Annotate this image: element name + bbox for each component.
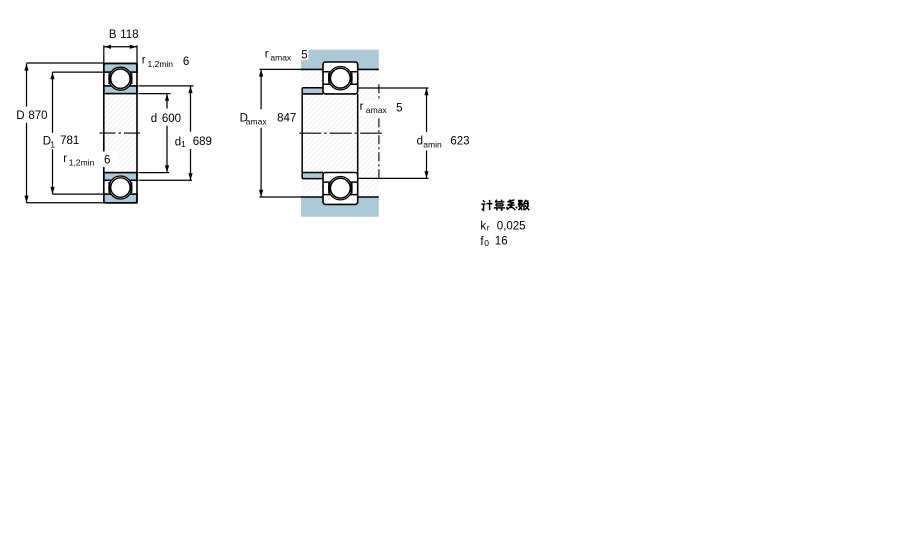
svg-text:r: r [265,49,269,61]
svg-text:1: 1 [50,139,55,149]
svg-text:1,2min: 1,2min [148,59,174,69]
svg-text:D: D [16,110,24,122]
svg-text:870: 870 [28,110,47,122]
svg-text:0: 0 [484,238,489,248]
svg-text:r: r [63,153,67,165]
svg-text:amax: amax [366,105,388,115]
svg-text:689: 689 [193,136,212,148]
svg-text:623: 623 [450,136,469,148]
svg-text:amax: amax [246,117,268,127]
svg-text:d: d [417,135,423,147]
svg-text:6: 6 [183,56,189,68]
svg-text:d: d [151,113,157,125]
svg-text:5: 5 [301,50,307,62]
svg-text:600: 600 [162,113,181,125]
svg-text:16: 16 [495,235,508,247]
svg-text:781: 781 [60,135,79,147]
svg-text:k: k [480,220,486,232]
svg-text:1,2min: 1,2min [69,157,95,167]
svg-text:r: r [142,55,146,67]
svg-text:1: 1 [181,139,186,149]
svg-text:0,025: 0,025 [497,221,526,233]
svg-text:6: 6 [104,155,110,167]
svg-text:amin: amin [423,140,442,150]
svg-text:847: 847 [277,113,296,125]
svg-text:amax: amax [270,52,292,62]
svg-text:B: B [109,29,117,41]
svg-text:r: r [487,222,490,232]
svg-text:r: r [360,101,364,113]
svg-text:118: 118 [120,29,138,41]
svg-text:5: 5 [396,103,402,115]
